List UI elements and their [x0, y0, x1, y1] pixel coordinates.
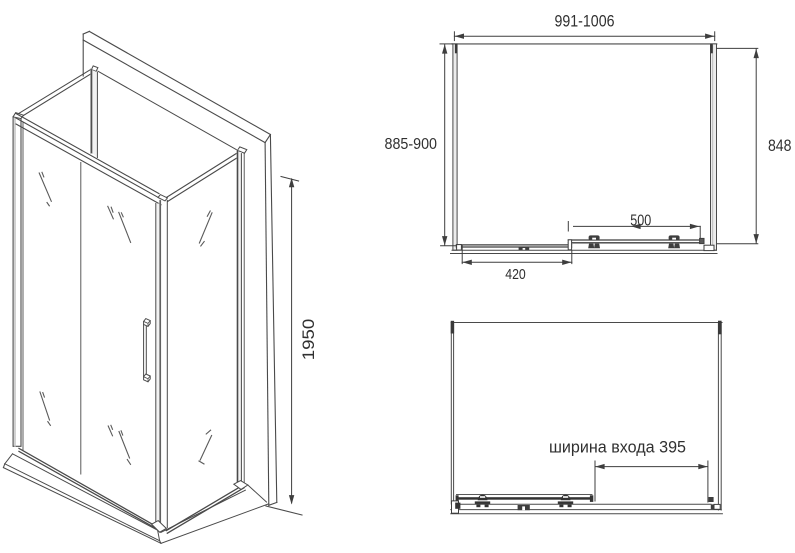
svg-text:1950: 1950: [300, 319, 318, 361]
svg-text:885-900: 885-900: [385, 136, 438, 153]
svg-text:848: 848: [768, 137, 792, 155]
svg-text:420: 420: [505, 266, 526, 283]
svg-text:ширина входа 395: ширина входа 395: [549, 439, 686, 457]
svg-text:500: 500: [630, 212, 651, 229]
svg-text:991-1006: 991-1006: [555, 12, 615, 30]
